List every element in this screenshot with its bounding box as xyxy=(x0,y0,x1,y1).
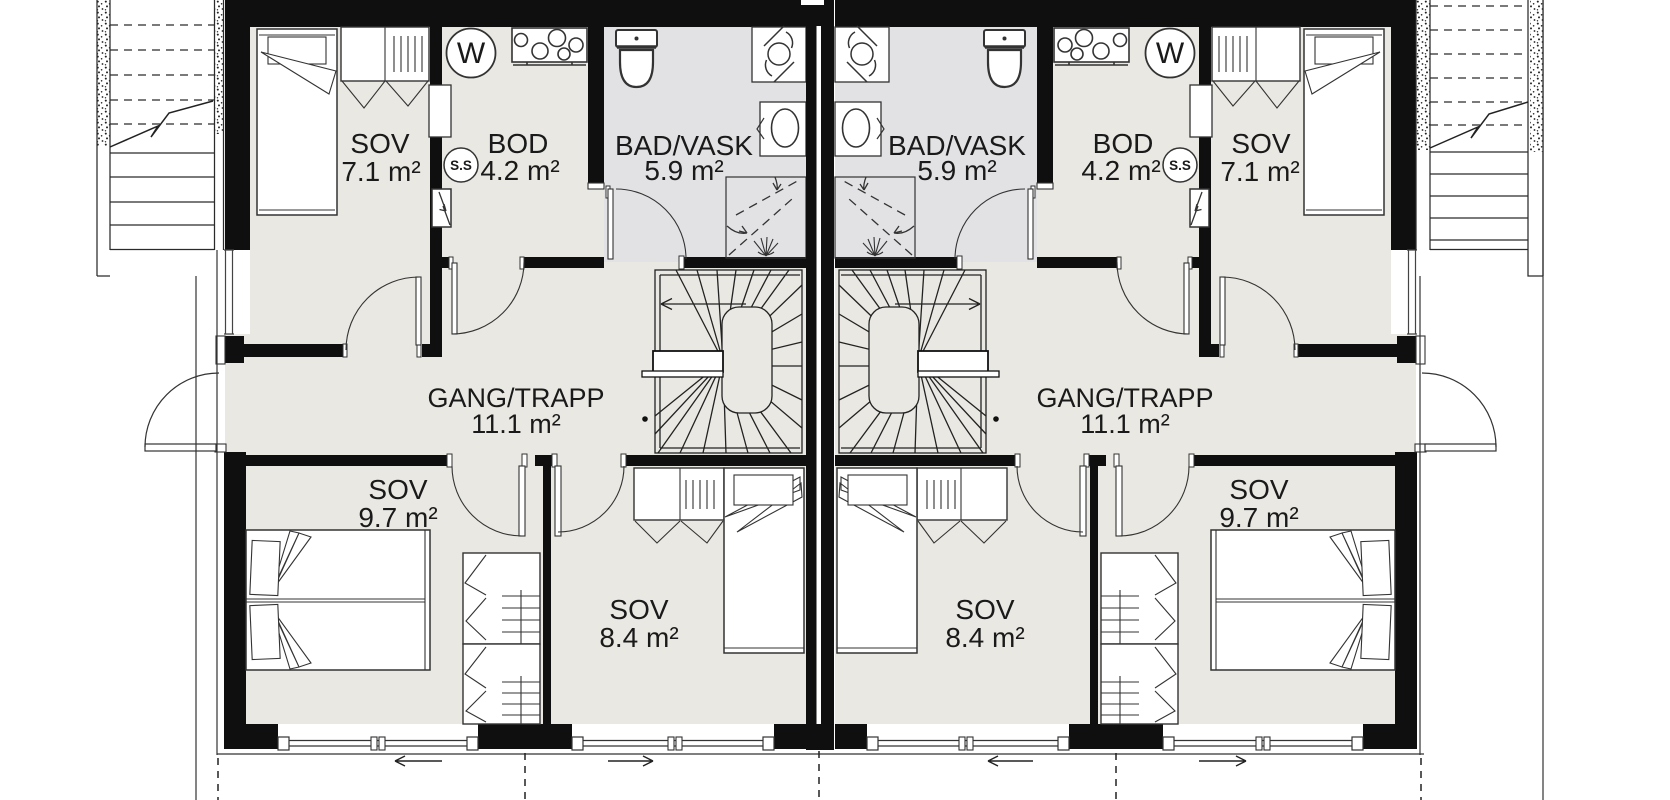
svg-text:SOV: SOV xyxy=(368,474,427,505)
svg-text:SOV: SOV xyxy=(955,594,1014,625)
svg-text:11.1 m²: 11.1 m² xyxy=(471,409,561,439)
svg-text:SOV: SOV xyxy=(609,594,668,625)
svg-text:S.S: S.S xyxy=(450,158,472,173)
svg-text:7.1 m²: 7.1 m² xyxy=(341,156,420,187)
svg-text:SOV: SOV xyxy=(350,128,409,159)
svg-text:5.9 m²: 5.9 m² xyxy=(917,155,996,186)
svg-text:5.9 m²: 5.9 m² xyxy=(644,155,723,186)
svg-text:SOV: SOV xyxy=(1231,128,1290,159)
svg-text:7.1 m²: 7.1 m² xyxy=(1220,156,1299,187)
svg-text:9.7 m²: 9.7 m² xyxy=(358,502,437,533)
svg-text:4.2 m²: 4.2 m² xyxy=(1081,155,1160,186)
svg-text:S.S: S.S xyxy=(1169,158,1191,173)
svg-text:W: W xyxy=(1156,37,1185,70)
svg-text:4.2 m²: 4.2 m² xyxy=(480,155,559,186)
svg-text:8.4 m²: 8.4 m² xyxy=(599,622,678,653)
svg-text:W: W xyxy=(457,37,486,70)
svg-text:8.4 m²: 8.4 m² xyxy=(945,622,1024,653)
svg-text:SOV: SOV xyxy=(1229,474,1288,505)
svg-text:11.1 m²: 11.1 m² xyxy=(1080,409,1170,439)
svg-text:9.7 m²: 9.7 m² xyxy=(1219,502,1298,533)
